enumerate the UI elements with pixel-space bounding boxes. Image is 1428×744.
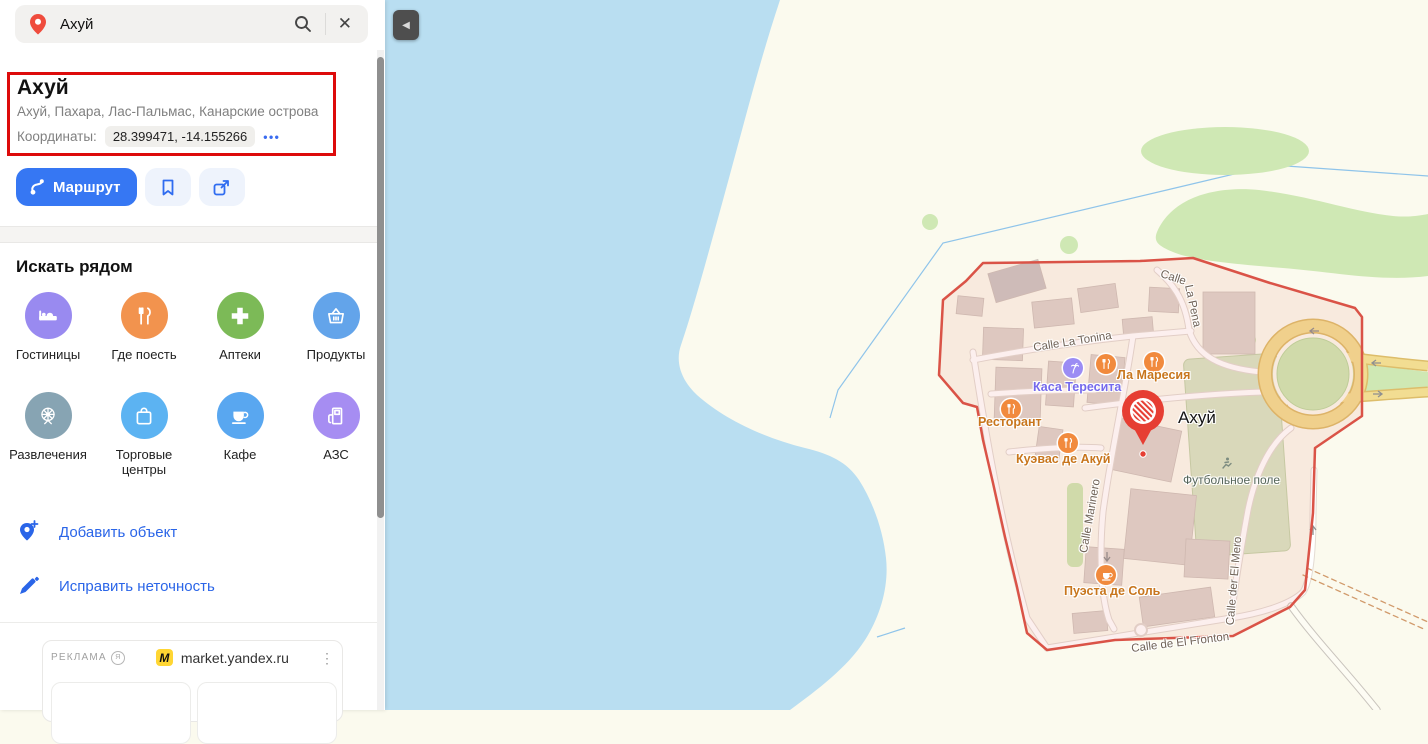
nearby-categories-grid: Гостиницы Где поесть Аптеки [0, 292, 384, 477]
category-entertainment[interactable]: Развлечения [0, 392, 96, 477]
ad-section-divider [0, 622, 377, 623]
coordinates-label: Координаты: [17, 129, 97, 144]
section-divider [0, 226, 377, 243]
ad-site[interactable]: M market.yandex.ru [156, 649, 289, 666]
scrollbar-thumb[interactable] [377, 57, 384, 518]
pencil-icon [18, 575, 40, 597]
poi-icon-cafe[interactable] [1096, 565, 1116, 585]
add-object-label: Добавить объект [59, 524, 177, 541]
fuel-icon [325, 405, 347, 427]
add-pin-icon [18, 520, 40, 544]
share-icon [212, 178, 231, 197]
poi-label-puesta-de-sol[interactable]: Пуэста де Соль [1064, 584, 1160, 598]
sidebar-panel: Ахуй ✕ Ахуй Ахуй, Пахара, Лас-Пальмас, К… [0, 0, 385, 710]
category-hotels[interactable]: Гостиницы [0, 292, 96, 362]
ad-site-label: market.yandex.ru [181, 650, 289, 666]
bookmark-icon [159, 178, 177, 197]
coordinates-row: Координаты: 28.399471, -14.155266 ••• [17, 126, 280, 147]
bookmark-button[interactable] [145, 168, 191, 206]
category-label: АЗС [323, 447, 349, 462]
nearby-heading: Искать рядом [16, 257, 133, 277]
result-title: Ахуй [17, 76, 69, 100]
category-pharmacy[interactable]: Аптеки [192, 292, 288, 362]
category-label: Развлечения [9, 447, 87, 462]
category-label: Где поесть [111, 347, 176, 362]
poi-label-la-maresiya[interactable]: Ла Маресия [1117, 368, 1190, 382]
search-icon [293, 14, 313, 34]
restaurant-icon [133, 305, 155, 327]
route-button-label: Маршрут [53, 179, 121, 196]
search-input[interactable]: Ахуй [60, 16, 293, 33]
add-object-link[interactable]: Добавить объект [18, 520, 177, 544]
search-button[interactable] [293, 14, 313, 34]
route-button[interactable]: Маршрут [16, 168, 137, 206]
ad-badge: РЕКЛАМА [51, 652, 107, 663]
category-label: Аптеки [219, 347, 261, 362]
category-cafe[interactable]: Кафе [192, 392, 288, 477]
poi-label-football-field: Футбольное поле [1183, 473, 1280, 487]
collapse-sidebar-button[interactable]: ◀ [393, 10, 419, 40]
category-gas[interactable]: АЗС [288, 392, 384, 477]
action-buttons-row: Маршрут [16, 168, 245, 206]
route-icon [28, 178, 46, 196]
clear-search-button[interactable]: ✕ [338, 14, 352, 34]
category-groceries[interactable]: Продукты [288, 292, 384, 362]
poi-icon-restaurant-4[interactable] [1058, 433, 1078, 453]
fix-inaccuracy-link[interactable]: Исправить неточность [18, 575, 215, 597]
result-subtitle: Ахуй, Пахара, Лас-Пальмас, Канарские ост… [17, 104, 318, 119]
ad-item-placeholder[interactable] [197, 682, 337, 744]
search-bar[interactable]: Ахуй ✕ [15, 5, 368, 43]
collapse-arrow-icon: ◀ [402, 20, 410, 31]
category-label: Гостиницы [16, 347, 80, 362]
kebab-menu-icon[interactable]: ⋮ [320, 655, 334, 661]
map-base-layer [385, 0, 1428, 710]
search-divider [325, 13, 326, 35]
close-icon: ✕ [338, 14, 352, 34]
plus-icon [229, 305, 251, 327]
water-area [385, 0, 887, 710]
category-label: Торговые центры [100, 447, 188, 477]
map-canvas[interactable]: Calle La Tonina Calle La Pena Calle Mari… [385, 0, 1428, 710]
runner-icon [1219, 456, 1233, 470]
share-button[interactable] [199, 168, 245, 206]
place-label[interactable]: Ахуй [1178, 408, 1216, 428]
ad-info-icon: Я [111, 651, 125, 665]
category-malls[interactable]: Торговые центры [96, 392, 192, 477]
search-pin-icon [29, 13, 47, 35]
fix-inaccuracy-label: Исправить неточность [59, 578, 215, 595]
cup-icon [229, 405, 251, 427]
poi-label-restorant[interactable]: Ресторант [978, 415, 1042, 429]
category-label: Продукты [307, 347, 366, 362]
poi-label-kuevas-de-akuy[interactable]: Куэвас де Акуй [1016, 452, 1111, 466]
coordinates-value[interactable]: 28.399471, -14.155266 [105, 126, 255, 147]
basket-icon [325, 305, 347, 327]
poi-icon-restaurant-1[interactable] [1096, 354, 1116, 374]
bed-icon [37, 305, 59, 327]
bag-icon [133, 405, 155, 427]
place-pin[interactable] [1113, 385, 1173, 460]
ad-item-placeholder[interactable] [51, 682, 191, 744]
category-label: Кафе [224, 447, 257, 462]
category-eat[interactable]: Где поесть [96, 292, 192, 362]
poi-label-kasa-teresita[interactable]: Каса Тересита [1033, 380, 1121, 394]
poi-icon-palm[interactable] [1063, 358, 1083, 378]
market-logo-icon: M [156, 649, 173, 666]
ferris-wheel-icon [37, 405, 59, 427]
more-options-icon[interactable]: ••• [263, 130, 280, 144]
